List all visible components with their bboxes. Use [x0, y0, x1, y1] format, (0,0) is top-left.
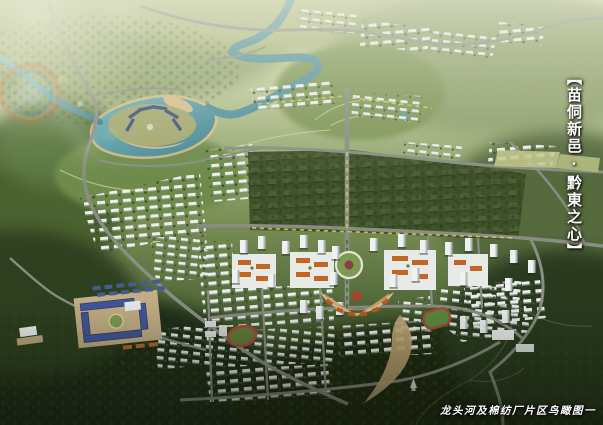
caption-bottom-text: 龙头河及棉纺厂片区鸟瞰图一 — [440, 403, 596, 418]
render-canvas — [0, 0, 603, 425]
slogan-vertical-text: 【苗侗新邑·黔東之心】 — [565, 70, 581, 260]
grain-overlay — [0, 0, 603, 425]
aerial-masterplan-render: 【苗侗新邑·黔東之心】 龙头河及棉纺厂片区鸟瞰图一 — [0, 0, 603, 425]
